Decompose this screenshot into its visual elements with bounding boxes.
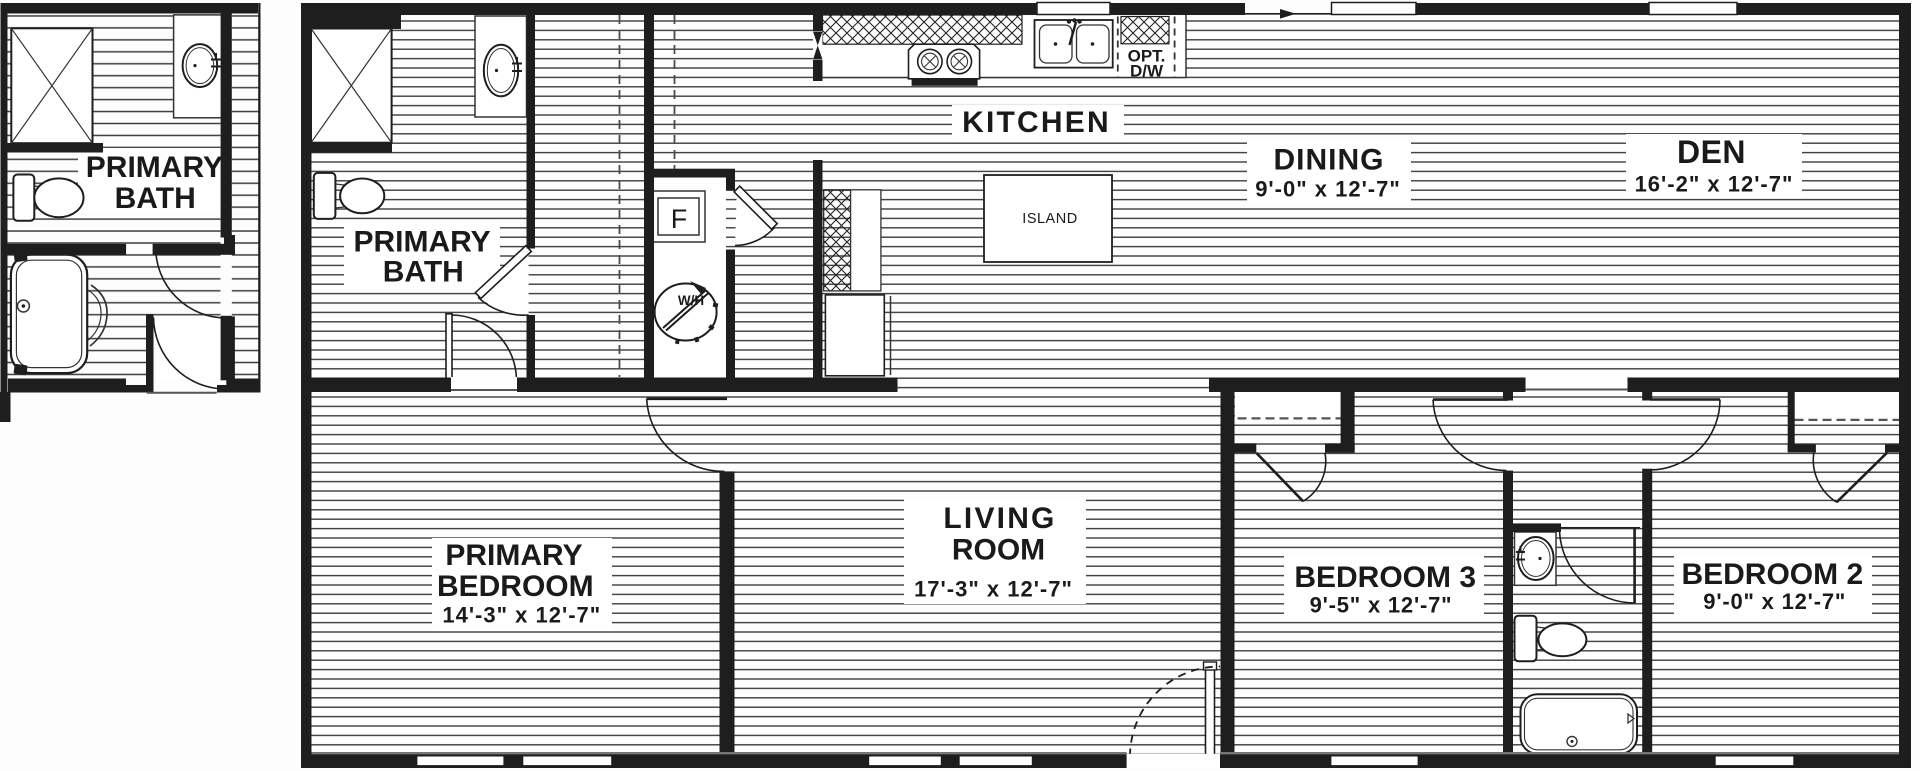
svg-text:KITCHEN: KITCHEN	[962, 106, 1111, 139]
svg-text:9'-0" x 12'-7": 9'-0" x 12'-7"	[1255, 177, 1401, 202]
svg-text:9'-5" x 12'-7": 9'-5" x 12'-7"	[1310, 593, 1453, 618]
svg-text:BATH: BATH	[115, 182, 196, 215]
svg-text:14'-3" x 12'-7": 14'-3" x 12'-7"	[442, 603, 601, 628]
svg-text:D/W: D/W	[1130, 62, 1164, 81]
svg-text:ROOM: ROOM	[952, 534, 1045, 567]
svg-text:DEN: DEN	[1677, 134, 1746, 170]
svg-text:16'-2" x 12'-7": 16'-2" x 12'-7"	[1635, 172, 1794, 197]
svg-text:BEDROOM: BEDROOM	[437, 570, 594, 603]
svg-text:PRIMARY: PRIMARY	[86, 151, 223, 184]
svg-text:PRIMARY: PRIMARY	[353, 226, 490, 259]
svg-text:DINING: DINING	[1274, 144, 1385, 177]
svg-text:BATH: BATH	[383, 256, 464, 289]
svg-text:PRIMARY: PRIMARY	[445, 539, 582, 572]
svg-text:BEDROOM 3: BEDROOM 3	[1294, 561, 1476, 594]
svg-text:9'-0" x 12'-7": 9'-0" x 12'-7"	[1703, 589, 1846, 614]
svg-text:17'-3" x 12'-7": 17'-3" x 12'-7"	[914, 577, 1073, 602]
svg-text:W/H: W/H	[678, 293, 704, 308]
svg-text:ISLAND: ISLAND	[1022, 211, 1077, 227]
svg-text:F: F	[671, 204, 688, 234]
svg-text:LIVING: LIVING	[943, 502, 1056, 535]
svg-text:BEDROOM 2: BEDROOM 2	[1681, 558, 1863, 591]
